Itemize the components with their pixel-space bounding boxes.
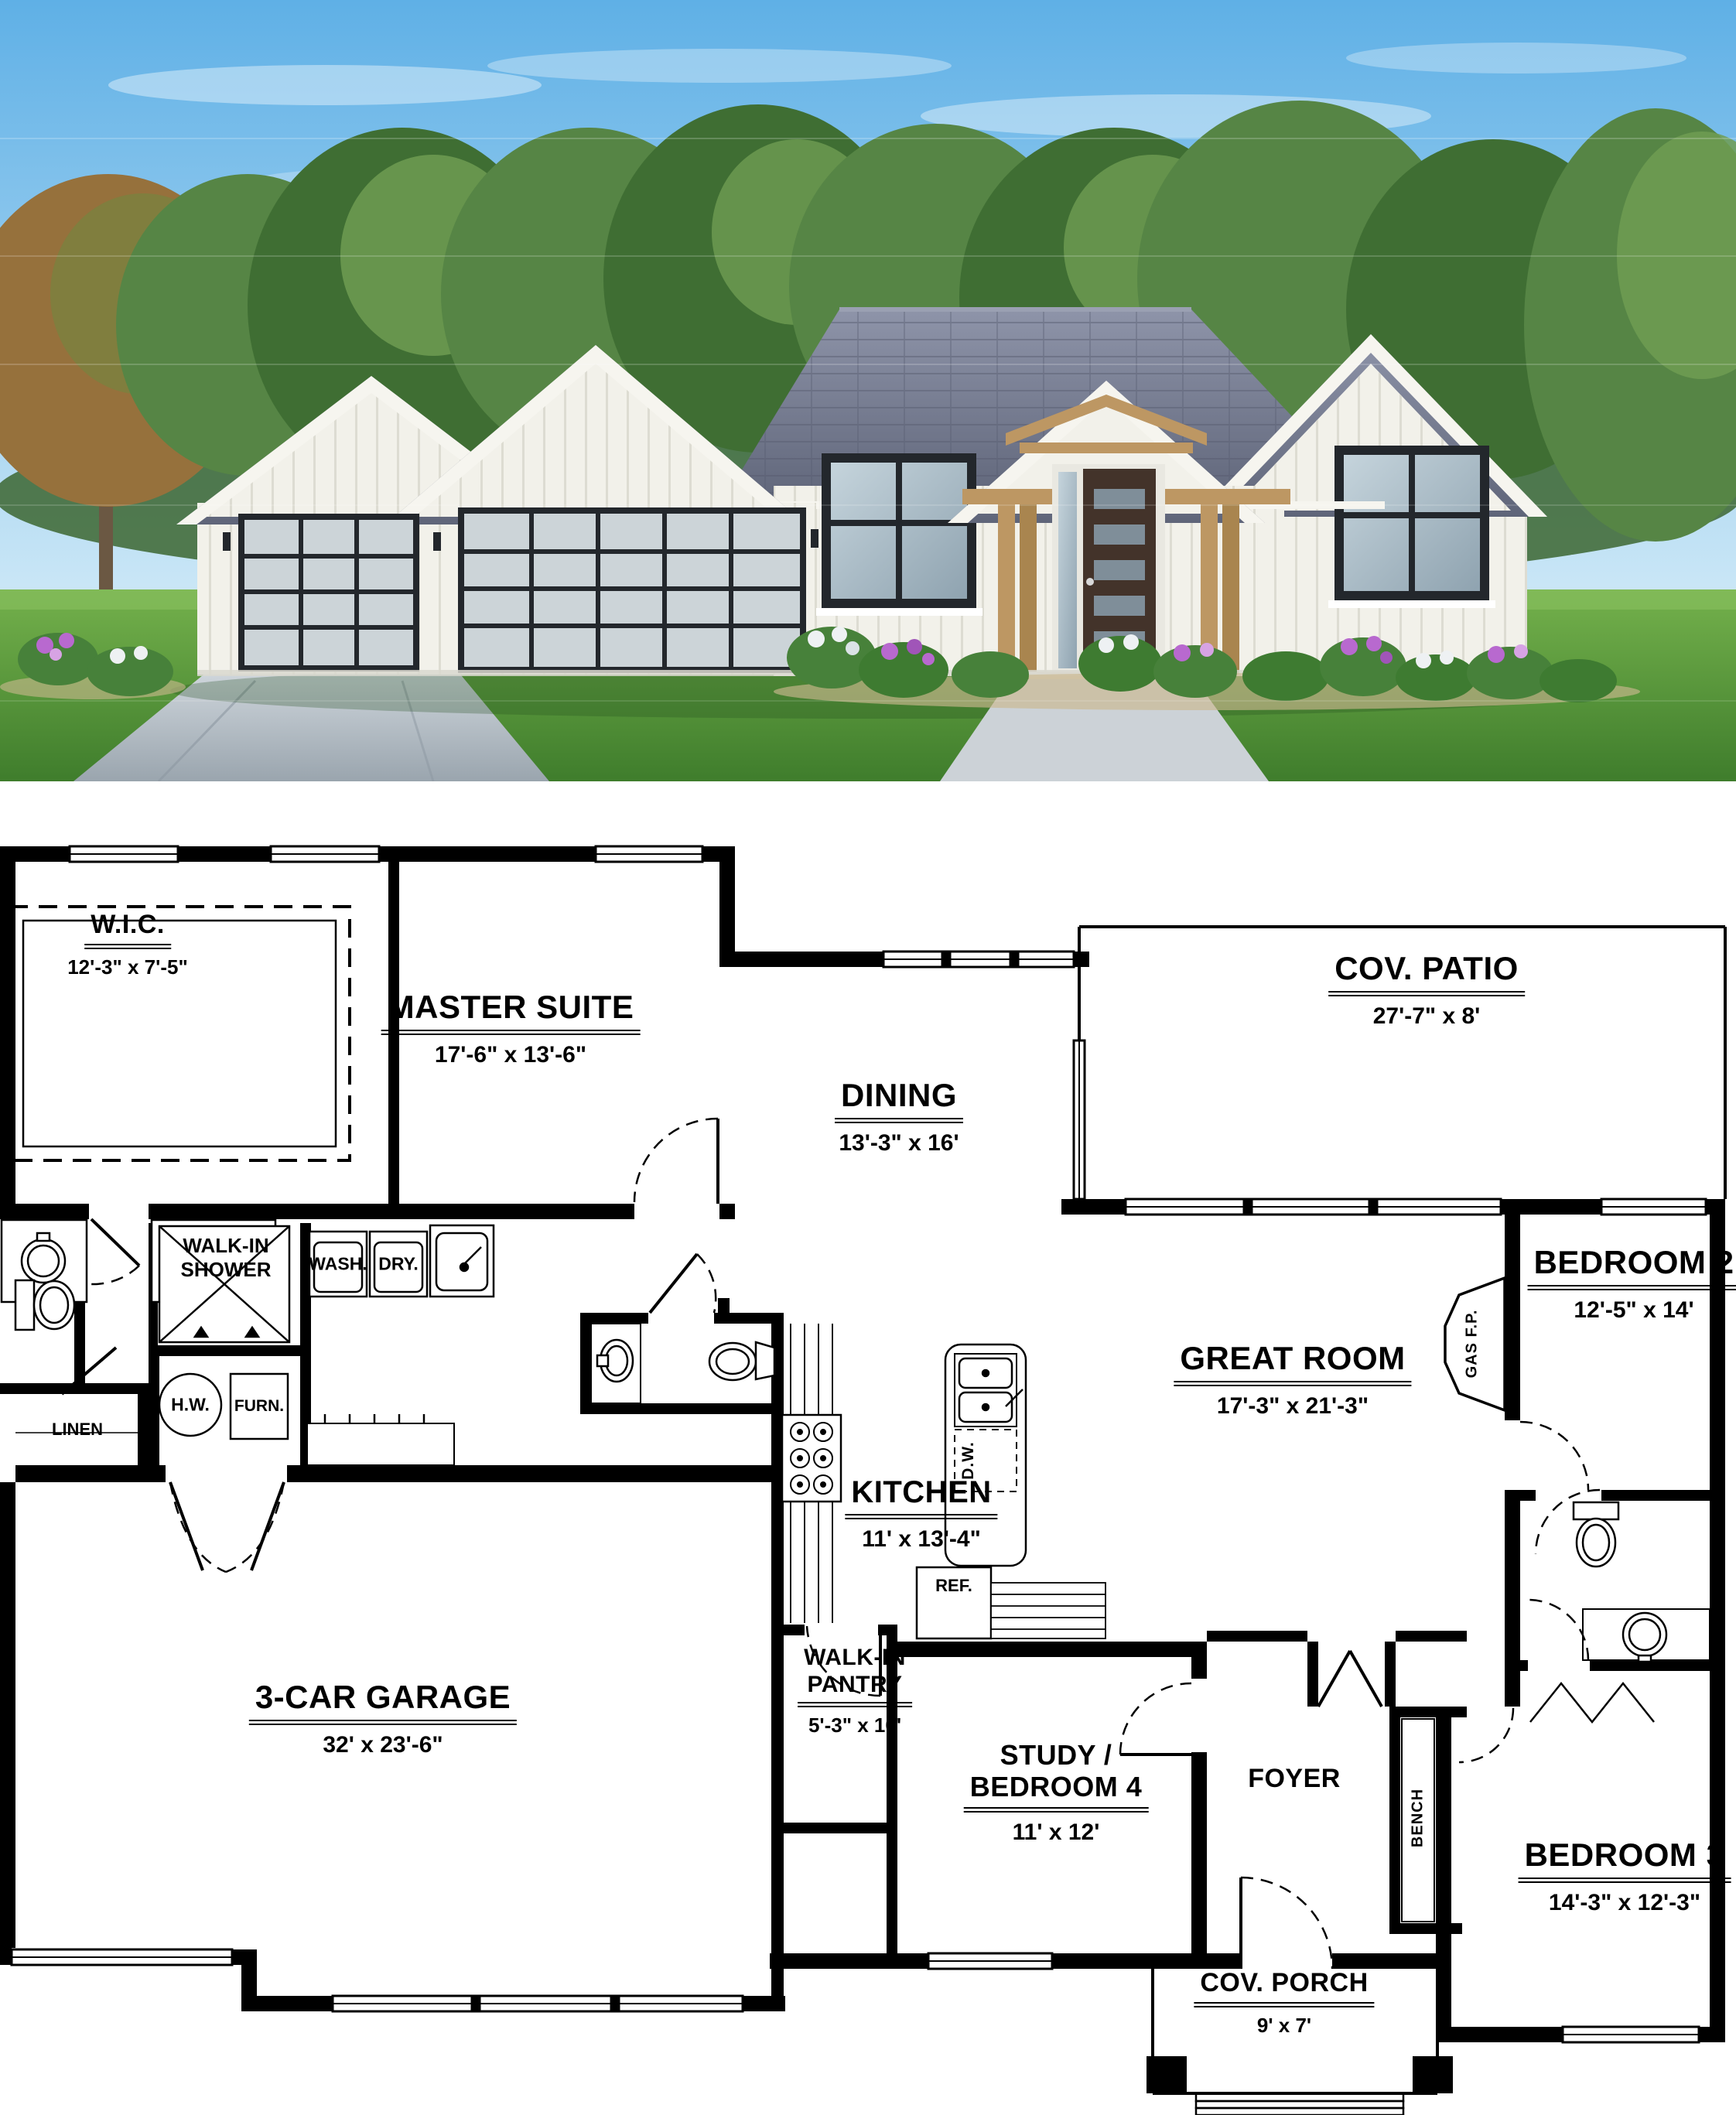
room-dims: 17'-6" x 13'-6" xyxy=(381,1042,641,1069)
counter-shelves xyxy=(991,1583,1106,1638)
room-dims: 11' x 12' xyxy=(964,1819,1149,1847)
range-stove xyxy=(782,1415,841,1502)
label-gas-fireplace: GAS F.P. xyxy=(1464,1310,1481,1379)
toilet xyxy=(709,1342,774,1380)
mud-bench xyxy=(307,1414,454,1465)
house-exterior-rendering xyxy=(0,0,1736,781)
room-name: STUDY /BEDROOM 4 xyxy=(964,1739,1149,1813)
laundry-sink xyxy=(430,1225,494,1297)
room-label-wic: W.I.C.12'-3" x 7'-5" xyxy=(67,910,188,979)
window xyxy=(1126,1198,1501,1216)
room-label-pantry: WALK-INPANTRY5'-3" x 10' xyxy=(798,1645,912,1737)
room-name: BEDROOM 2 xyxy=(1528,1244,1736,1290)
room-label-bedroom2: BEDROOM 212'-5" x 14' xyxy=(1528,1244,1736,1324)
room-dims: 27'-7" x 8' xyxy=(1328,1003,1525,1030)
wall-sconce xyxy=(223,532,231,551)
room-label-porch: COV. PORCH9' x 7' xyxy=(1194,1968,1374,2038)
room-dims: 17'-3" x 21'-3" xyxy=(1174,1393,1411,1420)
label-dishwasher: D.W. xyxy=(959,1441,978,1480)
room-name: FOYER xyxy=(1248,1764,1341,1794)
fixtures xyxy=(2,1220,1710,1922)
room-dims: 13'-3" x 16' xyxy=(835,1130,963,1157)
left-window xyxy=(815,453,982,616)
room-dims: 5'-3" x 10' xyxy=(798,1714,912,1737)
label-water-heater: H.W. xyxy=(171,1395,210,1416)
window xyxy=(70,845,178,863)
room-label-master: MASTER SUITE17'-6" x 13'-6" xyxy=(381,989,641,1069)
toilet xyxy=(15,1280,74,1330)
room-name: DINING xyxy=(835,1077,963,1123)
window xyxy=(1601,1198,1706,1216)
room-name: KITCHEN xyxy=(845,1474,997,1519)
house-plan-sheet: W.I.C.12'-3" x 7'-5" MASTER SUITE17'-6" … xyxy=(0,0,1736,2115)
bath-vanity xyxy=(1583,1609,1710,1662)
porch-steps xyxy=(1196,2093,1403,2115)
porch-column xyxy=(1413,2056,1453,2093)
window xyxy=(271,845,379,863)
room-label-foyer: FOYER xyxy=(1248,1764,1341,1794)
garage-door-single xyxy=(238,514,419,671)
window xyxy=(1563,2025,1699,2044)
room-name: BEDROOM 3 xyxy=(1519,1837,1731,1883)
label-walk-in-shower: WALK-INSHOWER xyxy=(181,1234,272,1282)
room-name: W.I.C. xyxy=(84,910,171,949)
wall-sconce xyxy=(433,532,441,551)
room-label-dining: DINING13'-3" x 16' xyxy=(835,1077,963,1157)
label-refrigerator: REF. xyxy=(935,1576,972,1596)
right-window xyxy=(1328,446,1495,608)
door-handle xyxy=(1086,578,1094,586)
window xyxy=(928,1952,1052,1970)
window-tall xyxy=(1072,1040,1086,1199)
room-dims: 9' x 7' xyxy=(1194,2014,1374,2038)
room-name: WALK-INPANTRY xyxy=(798,1645,912,1707)
room-name: MASTER SUITE xyxy=(381,989,641,1035)
room-dims: 12'-5" x 14' xyxy=(1528,1297,1736,1324)
room-label-garage: 3-CAR GARAGE32' x 23'-6" xyxy=(249,1679,517,1759)
room-label-bedroom3: BEDROOM 314'-3" x 12'-3" xyxy=(1519,1837,1731,1917)
label-washer: WASH. xyxy=(309,1254,367,1275)
window xyxy=(883,950,1074,969)
label-dryer: DRY. xyxy=(378,1254,419,1275)
window xyxy=(333,1994,743,2013)
room-name: COV. PATIO xyxy=(1328,950,1525,996)
floor-plan: W.I.C.12'-3" x 7'-5" MASTER SUITE17'-6" … xyxy=(0,835,1736,2115)
room-name: GREAT ROOM xyxy=(1174,1340,1411,1386)
room-label-study: STUDY /BEDROOM 411' x 12' xyxy=(964,1739,1149,1846)
garage-door-double xyxy=(458,507,806,673)
room-dims: 12'-3" x 7'-5" xyxy=(67,956,188,979)
window xyxy=(12,1948,232,1966)
room-label-great-room: GREAT ROOM17'-3" x 21'-3" xyxy=(1174,1340,1411,1420)
room-dims: 32' x 23'-6" xyxy=(249,1732,517,1759)
toilet xyxy=(1574,1502,1618,1567)
wall-sconce xyxy=(811,529,818,548)
room-label-kitchen: KITCHEN11' x 13'-4" xyxy=(845,1474,997,1553)
room-label-patio: COV. PATIO27'-7" x 8' xyxy=(1328,950,1525,1030)
label-furnace: FURN. xyxy=(234,1397,284,1416)
room-dims: 14'-3" x 12'-3" xyxy=(1519,1890,1731,1917)
window xyxy=(596,845,702,863)
label-linen: LINEN xyxy=(52,1420,103,1440)
room-dims: 11' x 13'-4" xyxy=(845,1526,997,1553)
room-name: 3-CAR GARAGE xyxy=(249,1679,517,1725)
label-bench: BENCH xyxy=(1410,1789,1427,1847)
bifold-closet-door xyxy=(1530,1683,1654,1722)
door-sidelight xyxy=(1058,472,1077,668)
hall-bath-vanity xyxy=(591,1324,641,1403)
porch-column xyxy=(1147,2056,1187,2093)
room-name: COV. PORCH xyxy=(1194,1968,1374,2007)
